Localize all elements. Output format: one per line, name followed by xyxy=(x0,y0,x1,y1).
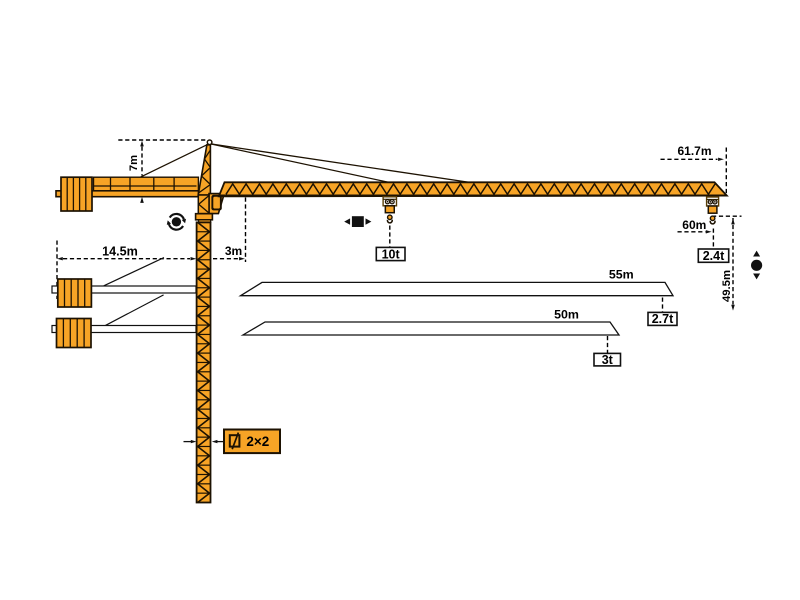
svg-text:14.5m: 14.5m xyxy=(102,244,138,258)
svg-text:3t: 3t xyxy=(602,353,614,367)
svg-text:60m: 60m xyxy=(682,218,706,232)
svg-text:7m: 7m xyxy=(128,155,140,171)
svg-text:2.7t: 2.7t xyxy=(652,312,674,326)
svg-text:3m: 3m xyxy=(225,244,242,258)
svg-text:10t: 10t xyxy=(382,247,401,261)
svg-text:61.7m: 61.7m xyxy=(677,144,711,158)
svg-text:49.5m: 49.5m xyxy=(721,270,733,302)
svg-text:55m: 55m xyxy=(609,268,634,282)
svg-text:2.4t: 2.4t xyxy=(703,249,725,263)
svg-text:50m: 50m xyxy=(554,308,579,322)
svg-text:2×2: 2×2 xyxy=(246,434,269,449)
